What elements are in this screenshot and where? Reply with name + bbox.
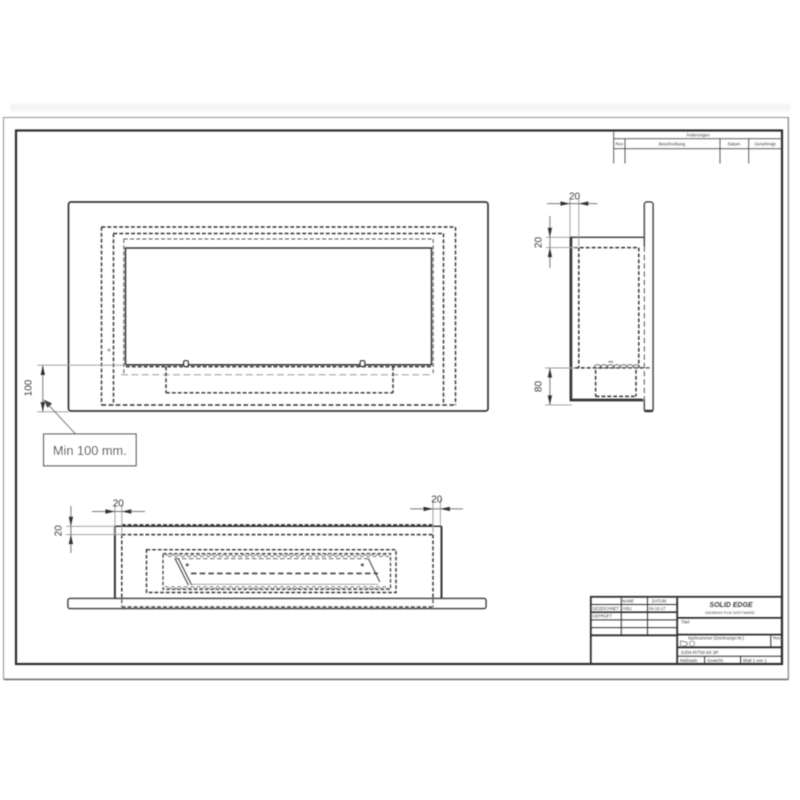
- svg-text:Genehmigt: Genehmigt: [754, 141, 776, 146]
- svg-text:20: 20: [534, 237, 545, 249]
- svg-text:Titel: Titel: [681, 620, 689, 625]
- svg-text:Rev: Rev: [615, 141, 623, 146]
- svg-text:20: 20: [431, 495, 443, 506]
- svg-text:Beschreibung: Beschreibung: [659, 141, 686, 146]
- svg-text:GEPRÜFT: GEPRÜFT: [593, 614, 613, 619]
- svg-text:20: 20: [113, 499, 125, 510]
- svg-text:GEZEICHNET: GEZEICHNET: [593, 606, 620, 611]
- svg-text:SIEMENS PLM SOFTWARE: SIEMENS PLM SOFTWARE: [705, 611, 755, 615]
- svg-text:DATUM: DATUM: [652, 598, 667, 603]
- svg-text:Rev: Rev: [773, 636, 781, 641]
- svg-text:HSU: HSU: [623, 606, 632, 611]
- svg-text:04-10-17: 04-10-17: [649, 606, 666, 611]
- svg-text:Blatt 1 von 1: Blatt 1 von 1: [743, 658, 767, 663]
- svg-text:Datum: Datum: [728, 141, 741, 146]
- svg-text:Sachnummer (Zeichnungs-Nr.): Sachnummer (Zeichnungs-Nr.): [688, 636, 745, 641]
- svg-text:20: 20: [54, 525, 65, 537]
- svg-text:SOLID EDGE: SOLID EDGE: [709, 602, 753, 609]
- svg-text:Maßstab:: Maßstab:: [680, 658, 698, 663]
- svg-text:20: 20: [569, 192, 581, 203]
- svg-text:NAME: NAME: [622, 598, 634, 603]
- svg-text:Gewicht:: Gewicht:: [707, 658, 724, 663]
- svg-text:DZM-R/TM 60 3P: DZM-R/TM 60 3P: [681, 650, 719, 656]
- svg-text:Min 100 mm.: Min 100 mm.: [53, 443, 127, 458]
- svg-text:100: 100: [24, 379, 35, 396]
- svg-text:Änderungen: Änderungen: [686, 133, 710, 138]
- svg-text:80: 80: [534, 381, 545, 393]
